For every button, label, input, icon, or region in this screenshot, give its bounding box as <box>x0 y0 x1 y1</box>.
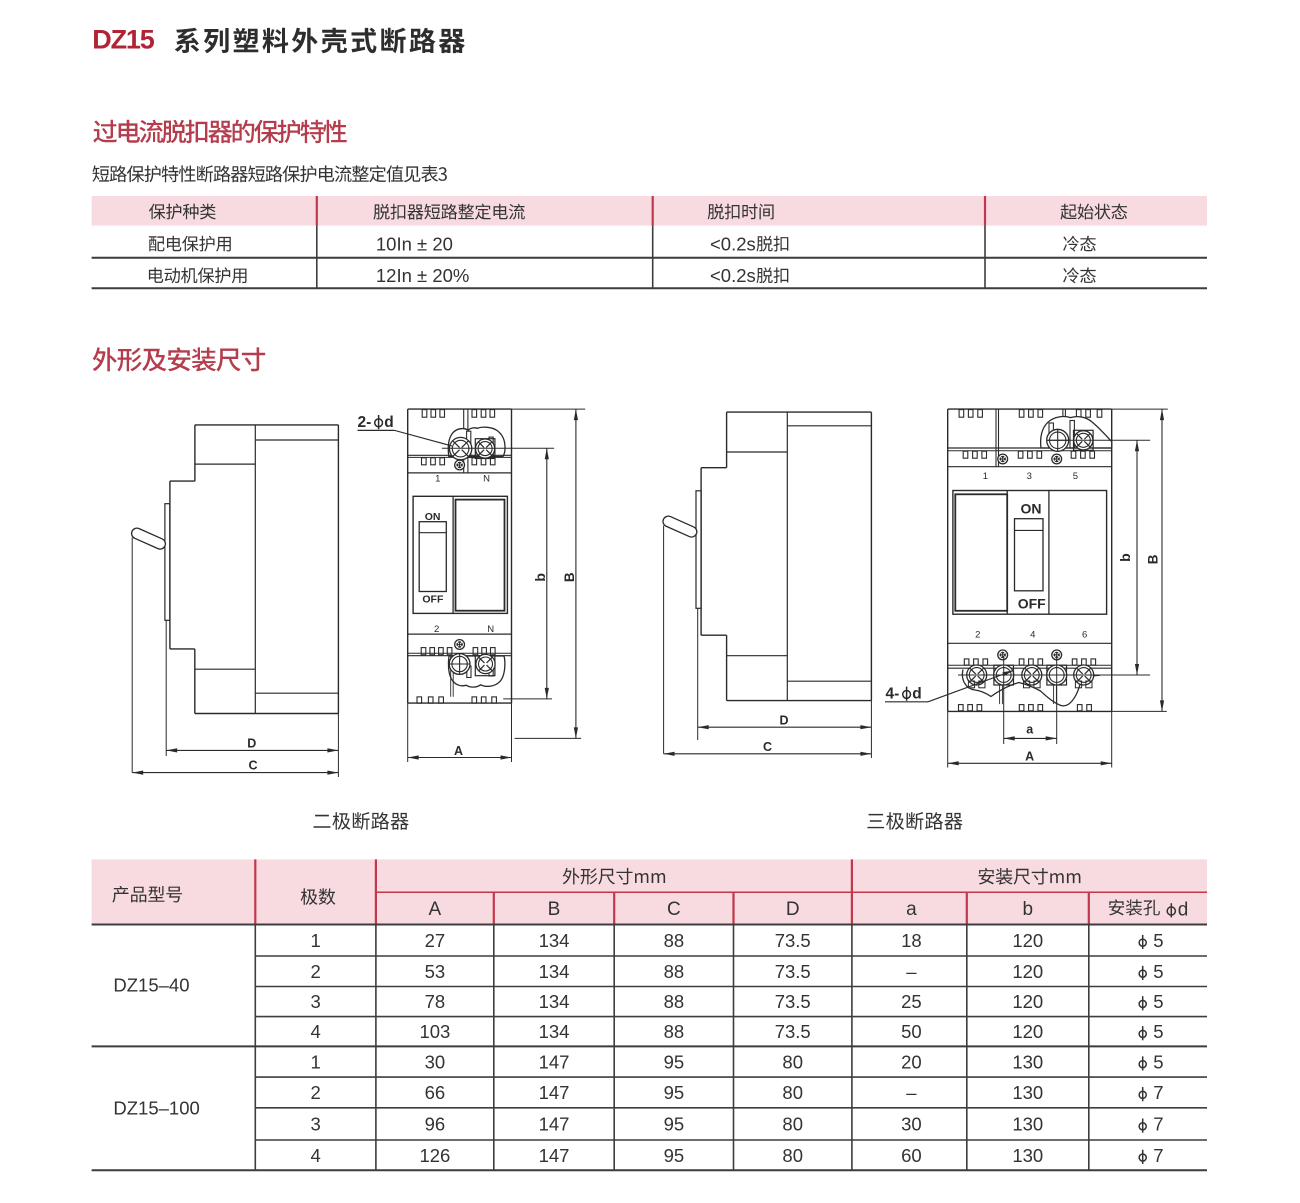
svg-text:120: 120 <box>1012 991 1043 1012</box>
svg-text:5: 5 <box>1153 1051 1163 1072</box>
svg-text:N: N <box>483 474 490 485</box>
svg-text:73.5: 73.5 <box>775 930 811 951</box>
svg-text:C: C <box>763 740 772 754</box>
svg-text:1: 1 <box>310 1051 320 1072</box>
svg-text:D: D <box>247 736 256 750</box>
svg-text:N: N <box>487 624 494 635</box>
svg-text:126: 126 <box>419 1145 450 1166</box>
svg-text:7: 7 <box>1153 1114 1163 1135</box>
svg-text:130: 130 <box>1012 1114 1043 1135</box>
svg-text:80: 80 <box>782 1145 803 1166</box>
svg-text:B: B <box>562 572 577 582</box>
svg-text:b: b <box>532 573 548 582</box>
svg-text:130: 130 <box>1012 1051 1043 1072</box>
svg-text:4: 4 <box>1030 629 1035 640</box>
svg-text:147: 147 <box>539 1145 570 1166</box>
svg-text:3: 3 <box>310 991 320 1012</box>
svg-text:ON: ON <box>425 511 441 523</box>
svg-text:D: D <box>786 899 800 920</box>
svg-text:2: 2 <box>975 629 980 640</box>
svg-text:147: 147 <box>539 1051 570 1072</box>
svg-text:7: 7 <box>1153 1082 1163 1103</box>
svg-text:6: 6 <box>1082 629 1087 640</box>
svg-text:134: 134 <box>539 961 570 982</box>
svg-text:5: 5 <box>1153 930 1163 951</box>
svg-text:DZ15: DZ15 <box>92 25 154 55</box>
svg-text:5: 5 <box>1153 1021 1163 1042</box>
svg-text:7: 7 <box>1153 1145 1163 1166</box>
svg-text:27: 27 <box>425 930 446 951</box>
svg-text:50: 50 <box>901 1021 922 1042</box>
svg-text:95: 95 <box>664 1145 685 1166</box>
svg-text:78: 78 <box>425 991 446 1012</box>
svg-text:10In ± 20: 10In ± 20 <box>376 234 453 255</box>
svg-text:<0.2s: <0.2s <box>710 234 756 255</box>
svg-text:DZ15–40: DZ15–40 <box>113 975 189 996</box>
svg-text:88: 88 <box>664 1021 685 1042</box>
svg-text:134: 134 <box>539 991 570 1012</box>
svg-text:134: 134 <box>539 930 570 951</box>
svg-text:B: B <box>1145 554 1160 564</box>
svg-text:1: 1 <box>435 474 440 485</box>
svg-text:D: D <box>779 713 788 727</box>
svg-text:4-: 4- <box>886 686 900 703</box>
svg-text:5: 5 <box>1073 471 1078 482</box>
svg-text:80: 80 <box>782 1082 803 1103</box>
svg-text:d: d <box>384 414 393 431</box>
svg-text:73.5: 73.5 <box>775 961 811 982</box>
svg-text:18: 18 <box>901 930 922 951</box>
svg-text:–: – <box>906 961 917 982</box>
svg-text:OFF: OFF <box>1018 596 1046 612</box>
svg-text:147: 147 <box>539 1114 570 1135</box>
svg-text:OFF: OFF <box>422 594 444 606</box>
svg-text:1: 1 <box>983 471 988 482</box>
svg-text:95: 95 <box>664 1082 685 1103</box>
svg-text:2: 2 <box>434 624 439 635</box>
svg-text:120: 120 <box>1012 930 1043 951</box>
svg-text:4: 4 <box>310 1021 320 1042</box>
svg-text:C: C <box>248 758 257 772</box>
svg-text:1: 1 <box>310 930 320 951</box>
svg-text:B: B <box>548 899 561 920</box>
svg-text:96: 96 <box>425 1114 446 1135</box>
svg-text:95: 95 <box>664 1051 685 1072</box>
svg-text:5: 5 <box>1153 961 1163 982</box>
svg-text:a: a <box>906 899 917 920</box>
svg-text:3: 3 <box>310 1114 320 1135</box>
svg-text:–: – <box>906 1082 917 1103</box>
svg-text:25: 25 <box>901 991 922 1012</box>
svg-text:103: 103 <box>419 1021 450 1042</box>
svg-text:95: 95 <box>664 1114 685 1135</box>
svg-text:2: 2 <box>310 961 320 982</box>
svg-text:134: 134 <box>539 1021 570 1042</box>
svg-text:30: 30 <box>425 1051 446 1072</box>
svg-text:5: 5 <box>1153 991 1163 1012</box>
svg-text:30: 30 <box>901 1114 922 1135</box>
svg-text:20: 20 <box>901 1051 922 1072</box>
svg-text:130: 130 <box>1012 1082 1043 1103</box>
svg-text:60: 60 <box>901 1145 922 1166</box>
svg-text:A: A <box>1025 749 1034 763</box>
svg-text:DZ15–100: DZ15–100 <box>113 1098 199 1119</box>
svg-text:b: b <box>1023 899 1034 920</box>
svg-text:130: 130 <box>1012 1145 1043 1166</box>
svg-text:ON: ON <box>1021 501 1042 517</box>
svg-text:<0.2s: <0.2s <box>710 265 756 286</box>
svg-text:80: 80 <box>782 1114 803 1135</box>
svg-text:73.5: 73.5 <box>775 1021 811 1042</box>
svg-text:C: C <box>667 899 681 920</box>
svg-text:a: a <box>1026 723 1034 737</box>
svg-text:88: 88 <box>664 961 685 982</box>
svg-text:3: 3 <box>1027 471 1032 482</box>
svg-text:4: 4 <box>310 1145 320 1166</box>
svg-text:12In ± 20%: 12In ± 20% <box>376 265 469 286</box>
svg-text:d: d <box>1178 899 1189 920</box>
svg-text:66: 66 <box>425 1082 446 1103</box>
svg-text:147: 147 <box>539 1082 570 1103</box>
svg-text:2-: 2- <box>358 414 372 431</box>
svg-text:A: A <box>429 899 442 920</box>
svg-text:120: 120 <box>1012 961 1043 982</box>
svg-text:b: b <box>1117 553 1133 562</box>
svg-text:120: 120 <box>1012 1021 1043 1042</box>
svg-text:53: 53 <box>425 961 446 982</box>
svg-text:88: 88 <box>664 991 685 1012</box>
svg-text:2: 2 <box>310 1082 320 1103</box>
svg-text:80: 80 <box>782 1051 803 1072</box>
svg-text:d: d <box>912 686 921 703</box>
svg-text:73.5: 73.5 <box>775 991 811 1012</box>
svg-text:A: A <box>454 744 463 758</box>
svg-text:88: 88 <box>664 930 685 951</box>
